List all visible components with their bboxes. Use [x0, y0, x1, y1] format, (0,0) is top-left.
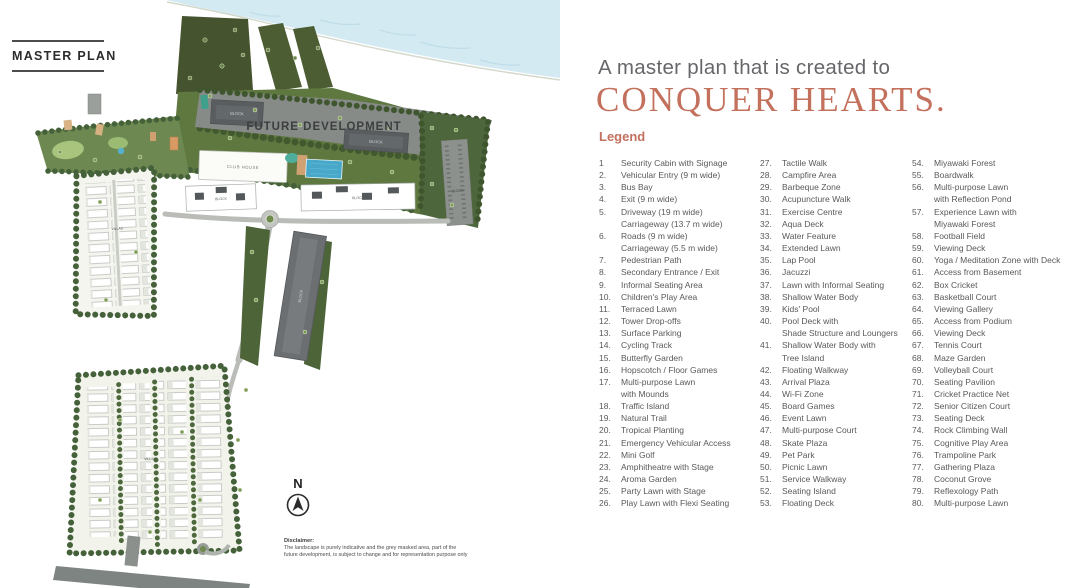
legend-item: 19.Natural Trail	[599, 412, 760, 424]
legend-item: 51.Service Walkway	[760, 473, 912, 485]
villas-label: VILLAS	[111, 227, 123, 232]
legend-item-text: Multi-purpose Lawn	[934, 497, 1080, 509]
legend-item-number: 65.	[912, 315, 934, 327]
legend-item: 8.Secondary Entrance / Exit	[599, 266, 760, 278]
legend-item-text: Lap Pool	[782, 254, 912, 266]
legend-item: 11.Terraced Lawn	[599, 303, 760, 315]
legend-item: 10.Children's Play Area	[599, 291, 760, 303]
legend-item-number: 61.	[912, 266, 934, 278]
legend-item-number: 12.	[599, 315, 621, 327]
headline-intro: A master plan that is created to	[598, 56, 890, 80]
legend-item-text: Terraced Lawn	[621, 303, 760, 315]
legend-item: 28.Campfire Area	[760, 169, 912, 181]
legend-item-number: 31.	[760, 206, 782, 218]
legend-item-number: 15.	[599, 352, 621, 364]
legend-item: 7.Pedestrian Path	[599, 254, 760, 266]
legend-item-number: 23.	[599, 461, 621, 473]
legend-item-text: Bus Bay	[621, 181, 760, 193]
legend-item-text: Multi-purpose Court	[782, 424, 912, 436]
legend-item-number: 7.	[599, 254, 621, 266]
legend-item-text: Acupuncture Walk	[782, 193, 912, 205]
block-label: BLOCK	[369, 139, 383, 145]
legend-item-text: Traffic Island	[621, 400, 760, 412]
legend-item-number: 80.	[912, 497, 934, 509]
content-panel: A master plan that is created to CONQUER…	[560, 0, 1080, 588]
legend-item-text: Tennis Court	[934, 339, 1080, 351]
legend-item-number: 4.	[599, 193, 621, 205]
legend-item: 18.Traffic Island	[599, 400, 760, 412]
legend-item: 5.Driveway (19 m wide)Carriageway (13.7 …	[599, 206, 760, 230]
legend-item: 34.Extended Lawn	[760, 242, 912, 254]
legend-item-text: Emergency Vehicular Access	[621, 437, 760, 449]
legend-item: 23.Amphitheatre with Stage	[599, 461, 760, 473]
legend-item-text: Exercise Centre	[782, 206, 912, 218]
legend-item-text: Tropical Planting	[621, 424, 760, 436]
legend-heading: Legend	[599, 129, 645, 144]
legend-item-text: Event Lawn	[782, 412, 912, 424]
legend-item-text: Seating Island	[782, 485, 912, 497]
legend-item-text: Multi-purpose Lawnwith Mounds	[621, 376, 760, 400]
legend-item-text: Access from Podium	[934, 315, 1080, 327]
legend-item-text: Campfire Area	[782, 169, 912, 181]
legend-item-text: Water Feature	[782, 230, 912, 242]
legend-item-text: Driveway (19 m wide)Carriageway (13.7 m …	[621, 206, 760, 230]
legend-item-text: Jacuzzi	[782, 266, 912, 278]
legend-item-text: Kids' Pool	[782, 303, 912, 315]
legend-item: 72.Senior Citizen Court	[912, 400, 1080, 412]
legend-item: 76.Trampoline Park	[912, 449, 1080, 461]
legend-item-text: Exit (9 m wide)	[621, 193, 760, 205]
legend-item-number: 60.	[912, 254, 934, 266]
legend-item-number: 41.	[760, 339, 782, 363]
legend-item: 39.Kids' Pool	[760, 303, 912, 315]
legend-item-number: 44.	[760, 388, 782, 400]
legend-item-number: 58.	[912, 230, 934, 242]
north-compass: N	[276, 477, 320, 525]
legend-item-number: 56.	[912, 181, 934, 205]
disclaimer-heading: Disclaimer:	[284, 538, 524, 545]
legend-item: 77.Gathering Plaza	[912, 461, 1080, 473]
legend-item-number: 47.	[760, 424, 782, 436]
legend-item: 68.Maze Garden	[912, 352, 1080, 364]
legend-item-number: 77.	[912, 461, 934, 473]
legend-item-number: 9.	[599, 279, 621, 291]
legend-item-number: 43.	[760, 376, 782, 388]
legend-item-text: Pet Park	[782, 449, 912, 461]
legend-item: 1Security Cabin with Signage	[599, 157, 760, 169]
legend-item-text: Basketball Court	[934, 291, 1080, 303]
legend-item: 60.Yoga / Meditation Zone with Deck	[912, 254, 1080, 266]
legend-item: 73.Seating Deck	[912, 412, 1080, 424]
legend-item: 63.Basketball Court	[912, 291, 1080, 303]
legend-item: 13.Surface Parking	[599, 327, 760, 339]
legend-item-number: 8.	[599, 266, 621, 278]
legend-item-number: 74.	[912, 424, 934, 436]
legend-item-text: Cycling Track	[621, 339, 760, 351]
legend-item-number: 53.	[760, 497, 782, 509]
tag-rule-bottom	[12, 70, 104, 72]
legend-item-number: 39.	[760, 303, 782, 315]
villas-label: VILLAS	[144, 457, 156, 461]
legend-item: 3.Bus Bay	[599, 181, 760, 193]
legend-item-number: 45.	[760, 400, 782, 412]
legend-item-text: Reflexology Path	[934, 485, 1080, 497]
block-label: BLOCK	[352, 196, 365, 200]
legend-item-number: 6.	[599, 230, 621, 254]
legend-item-number: 26.	[599, 497, 621, 509]
legend-item: 75.Cognitive Play Area	[912, 437, 1080, 449]
legend-item-text: Experience Lawn withMiyawaki Forest	[934, 206, 1080, 230]
legend-item-number: 72.	[912, 400, 934, 412]
legend-item: 62.Box Cricket	[912, 279, 1080, 291]
legend-item: 33.Water Feature	[760, 230, 912, 242]
master-plan-page: { "panel_left": { "tag": "MASTER PLAN", …	[0, 0, 1080, 588]
legend-item: 25.Party Lawn with Stage	[599, 485, 760, 497]
block-label: BLOCK	[230, 111, 244, 117]
legend-item-text: Butterfly Garden	[621, 352, 760, 364]
legend-item: 32.Aqua Deck	[760, 218, 912, 230]
legend-item-number: 13.	[599, 327, 621, 339]
legend-item-text: Seating Deck	[934, 412, 1080, 424]
legend-item-text: Volleyball Court	[934, 364, 1080, 376]
legend-item-number: 22.	[599, 449, 621, 461]
legend-item-number: 11.	[599, 303, 621, 315]
legend-item-text: Surface Parking	[621, 327, 760, 339]
legend-column: 54.Miyawaki Forest55.Boardwalk56.Multi-p…	[912, 157, 1080, 510]
legend-item-text: Rock Climbing Wall	[934, 424, 1080, 436]
legend-item-text: Tactile Walk	[782, 157, 912, 169]
legend-item-text: Yoga / Meditation Zone with Deck	[934, 254, 1080, 266]
legend-item-number: 18.	[599, 400, 621, 412]
legend-item-number: 69.	[912, 364, 934, 376]
legend-item-number: 50.	[760, 461, 782, 473]
legend-item-text: Natural Trail	[621, 412, 760, 424]
legend-item-text: Roads (9 m wide)Carriageway (5.5 m wide)	[621, 230, 760, 254]
legend-item-number: 68.	[912, 352, 934, 364]
legend-item-number: 49.	[760, 449, 782, 461]
legend-item-number: 76.	[912, 449, 934, 461]
legend-item-number: 42.	[760, 364, 782, 376]
legend-item: 70.Seating Pavilion	[912, 376, 1080, 388]
swimming-pool	[306, 159, 343, 179]
legend-item: 42.Floating Walkway	[760, 364, 912, 376]
legend-item: 80.Multi-purpose Lawn	[912, 497, 1080, 509]
legend-item-number: 34.	[760, 242, 782, 254]
legend-item-text: Security Cabin with Signage	[621, 157, 760, 169]
legend-item: 31.Exercise Centre	[760, 206, 912, 218]
legend-item-number: 51.	[760, 473, 782, 485]
map-panel: BLOCK BLOCK BLOCK	[0, 0, 560, 588]
compass-icon	[276, 490, 320, 520]
legend-item-number: 17.	[599, 376, 621, 400]
legend-item-number: 55.	[912, 169, 934, 181]
legend-item: 56.Multi-purpose Lawnwith Reflection Pon…	[912, 181, 1080, 205]
legend-item-number: 5.	[599, 206, 621, 230]
legend-item: 67.Tennis Court	[912, 339, 1080, 351]
legend-item-text: Skate Plaza	[782, 437, 912, 449]
villa-cluster-south: VILLAS	[66, 366, 239, 554]
forest-area	[176, 16, 333, 94]
legend-item-number: 75.	[912, 437, 934, 449]
legend-item: 55.Boardwalk	[912, 169, 1080, 181]
legend-item: 46.Event Lawn	[760, 412, 912, 424]
legend-item: 59.Viewing Deck	[912, 242, 1080, 254]
legend-item-text: Miyawaki Forest	[934, 157, 1080, 169]
legend-item: 48.Skate Plaza	[760, 437, 912, 449]
legend-columns: 1Security Cabin with Signage2.Vehicular …	[599, 157, 1080, 510]
legend-item-number: 25.	[599, 485, 621, 497]
master-plan-tag: MASTER PLAN	[12, 40, 117, 72]
legend-item-text: Boardwalk	[934, 169, 1080, 181]
legend-item: 20.Tropical Planting	[599, 424, 760, 436]
legend-item-text: Children's Play Area	[621, 291, 760, 303]
legend-item: 30.Acupuncture Walk	[760, 193, 912, 205]
legend-item-text: Mini Golf	[621, 449, 760, 461]
legend-item: 9.Informal Seating Area	[599, 279, 760, 291]
legend-item-text: Secondary Entrance / Exit	[621, 266, 760, 278]
legend-item-number: 46.	[760, 412, 782, 424]
surface-parking-strip: BLOCK	[441, 139, 473, 226]
legend-item-text: Arrival Plaza	[782, 376, 912, 388]
legend-item: 53.Floating Deck	[760, 497, 912, 509]
legend-item-number: 57.	[912, 206, 934, 230]
legend-item-text: Gathering Plaza	[934, 461, 1080, 473]
legend-item-text: Board Games	[782, 400, 912, 412]
disclaimer: Disclaimer: The landscape is purely indi…	[284, 538, 524, 559]
legend-item-text: Wi-Fi Zone	[782, 388, 912, 400]
legend-item-text: Coconut Grove	[934, 473, 1080, 485]
legend-item-text: Viewing Deck	[934, 327, 1080, 339]
legend-item: 74.Rock Climbing Wall	[912, 424, 1080, 436]
legend-item-text: Tower Drop-offs	[621, 315, 760, 327]
legend-item: 52.Seating Island	[760, 485, 912, 497]
legend-item-number: 19.	[599, 412, 621, 424]
legend-item-number: 78.	[912, 473, 934, 485]
legend-item-number: 3.	[599, 181, 621, 193]
legend-item-number: 10.	[599, 291, 621, 303]
legend-item-text: Viewing Gallery	[934, 303, 1080, 315]
legend-item: 71.Cricket Practice Net	[912, 388, 1080, 400]
legend-item: 78.Coconut Grove	[912, 473, 1080, 485]
legend-item-text: Informal Seating Area	[621, 279, 760, 291]
legend-item-number: 38.	[760, 291, 782, 303]
disclaimer-line: The landscape is purely indicative and t…	[284, 545, 524, 552]
legend-item: 36.Jacuzzi	[760, 266, 912, 278]
legend-item-text: Vehicular Entry (9 m wide)	[621, 169, 760, 181]
legend-item-text: Service Walkway	[782, 473, 912, 485]
legend-item-number: 63.	[912, 291, 934, 303]
legend-item: 49.Pet Park	[760, 449, 912, 461]
legend-item-number: 24.	[599, 473, 621, 485]
legend-item-text: Football Field	[934, 230, 1080, 242]
legend-item: 29.Barbeque Zone	[760, 181, 912, 193]
legend-item-text: Aroma Garden	[621, 473, 760, 485]
compass-n-label: N	[276, 477, 320, 490]
legend-item-number: 1	[599, 157, 621, 169]
legend-item-text: Pool Deck withShade Structure and Lounge…	[782, 315, 912, 339]
legend-item-number: 30.	[760, 193, 782, 205]
legend-item: 50.Picnic Lawn	[760, 461, 912, 473]
legend-item-text: Shallow Water Body	[782, 291, 912, 303]
legend-item-number: 66.	[912, 327, 934, 339]
legend-item-text: Cricket Practice Net	[934, 388, 1080, 400]
legend-item-number: 33.	[760, 230, 782, 242]
legend-item: 14.Cycling Track	[599, 339, 760, 351]
legend-item: 43.Arrival Plaza	[760, 376, 912, 388]
future-development-label: FUTURE DEVELOPMENT	[246, 121, 401, 133]
legend-item: 4.Exit (9 m wide)	[599, 193, 760, 205]
legend-item-number: 35.	[760, 254, 782, 266]
legend-item-text: Shallow Water Body withTree Island	[782, 339, 912, 363]
legend-item-number: 79.	[912, 485, 934, 497]
legend-item: 24.Aroma Garden	[599, 473, 760, 485]
legend-column: 27.Tactile Walk28.Campfire Area29.Barbeq…	[760, 157, 912, 510]
legend-item-number: 67.	[912, 339, 934, 351]
legend-item: 69.Volleyball Court	[912, 364, 1080, 376]
legend-column: 1Security Cabin with Signage2.Vehicular …	[599, 157, 760, 510]
legend-item-number: 2.	[599, 169, 621, 181]
legend-item-number: 62.	[912, 279, 934, 291]
disclaimer-line: future development, is subject to change…	[284, 552, 524, 559]
legend-item-text: Amphitheatre with Stage	[621, 461, 760, 473]
legend-item: 64.Viewing Gallery	[912, 303, 1080, 315]
legend-item-text: Multi-purpose Lawnwith Reflection Pond	[934, 181, 1080, 205]
legend-item-text: Floating Walkway	[782, 364, 912, 376]
legend-item: 37.Lawn with Informal Seating	[760, 279, 912, 291]
master-plan-title: MASTER PLAN	[12, 42, 117, 70]
legend-item: 21.Emergency Vehicular Access	[599, 437, 760, 449]
legend-item-number: 70.	[912, 376, 934, 388]
legend-item: 57.Experience Lawn withMiyawaki Forest	[912, 206, 1080, 230]
legend-item-number: 64.	[912, 303, 934, 315]
legend-item-text: Maze Garden	[934, 352, 1080, 364]
block-label: BLOCK	[215, 197, 228, 201]
legend-item-text: Party Lawn with Stage	[621, 485, 760, 497]
legend-item: 65.Access from Podium	[912, 315, 1080, 327]
legend-item: 47.Multi-purpose Court	[760, 424, 912, 436]
legend-item: 35.Lap Pool	[760, 254, 912, 266]
legend-item: 38.Shallow Water Body	[760, 291, 912, 303]
legend-item-text: Box Cricket	[934, 279, 1080, 291]
legend-item-text: Viewing Deck	[934, 242, 1080, 254]
legend-item: 40.Pool Deck withShade Structure and Lou…	[760, 315, 912, 339]
legend-item-text: Pedestrian Path	[621, 254, 760, 266]
legend-item-number: 59.	[912, 242, 934, 254]
legend-item: 12.Tower Drop-offs	[599, 315, 760, 327]
legend-item: 79.Reflexology Path	[912, 485, 1080, 497]
legend-item-number: 32.	[760, 218, 782, 230]
legend-item-number: 14.	[599, 339, 621, 351]
legend-item: 66.Viewing Deck	[912, 327, 1080, 339]
legend-item-number: 48.	[760, 437, 782, 449]
legend-item-text: Seating Pavilion	[934, 376, 1080, 388]
legend-item-text: Play Lawn with Flexi Seating	[621, 497, 760, 509]
legend-item: 26.Play Lawn with Flexi Seating	[599, 497, 760, 509]
legend-item: 41.Shallow Water Body withTree Island	[760, 339, 912, 363]
legend-item: 16.Hopscotch / Floor Games	[599, 364, 760, 376]
legend-item-number: 28.	[760, 169, 782, 181]
legend-item: 2.Vehicular Entry (9 m wide)	[599, 169, 760, 181]
legend-item-number: 27.	[760, 157, 782, 169]
legend-item-number: 52.	[760, 485, 782, 497]
legend-item: 61.Access from Basement	[912, 266, 1080, 278]
legend-item-text: Access from Basement	[934, 266, 1080, 278]
legend-item-number: 16.	[599, 364, 621, 376]
legend-item: 54.Miyawaki Forest	[912, 157, 1080, 169]
legend-item-text: Hopscotch / Floor Games	[621, 364, 760, 376]
legend-item-number: 73.	[912, 412, 934, 424]
legend-item: 27.Tactile Walk	[760, 157, 912, 169]
legend-item: 44.Wi-Fi Zone	[760, 388, 912, 400]
legend-item-text: Barbeque Zone	[782, 181, 912, 193]
legend-item-number: 36.	[760, 266, 782, 278]
legend-item: 15.Butterfly Garden	[599, 352, 760, 364]
legend-item: 45.Board Games	[760, 400, 912, 412]
tower-corridor: BLOCK	[240, 226, 332, 370]
legend-item: 58.Football Field	[912, 230, 1080, 242]
legend-item-text: Picnic Lawn	[782, 461, 912, 473]
legend-item-text: Floating Deck	[782, 497, 912, 509]
legend-item-text: Trampoline Park	[934, 449, 1080, 461]
legend-item-text: Lawn with Informal Seating	[782, 279, 912, 291]
legend-item-text: Cognitive Play Area	[934, 437, 1080, 449]
legend-item-number: 29.	[760, 181, 782, 193]
legend-item-number: 71.	[912, 388, 934, 400]
legend-item-text: Extended Lawn	[782, 242, 912, 254]
legend-item-text: Senior Citizen Court	[934, 400, 1080, 412]
legend-item: 17.Multi-purpose Lawnwith Mounds	[599, 376, 760, 400]
legend-item-number: 54.	[912, 157, 934, 169]
legend-item: 6.Roads (9 m wide)Carriageway (5.5 m wid…	[599, 230, 760, 254]
legend-item-number: 21.	[599, 437, 621, 449]
legend-item-number: 20.	[599, 424, 621, 436]
headline-main: CONQUER HEARTS.	[596, 80, 947, 120]
legend-item-number: 37.	[760, 279, 782, 291]
villa-cluster-west: VILLAS	[68, 168, 162, 320]
legend-item-number: 40.	[760, 315, 782, 339]
legend-item-text: Aqua Deck	[782, 218, 912, 230]
legend-item: 22.Mini Golf	[599, 449, 760, 461]
